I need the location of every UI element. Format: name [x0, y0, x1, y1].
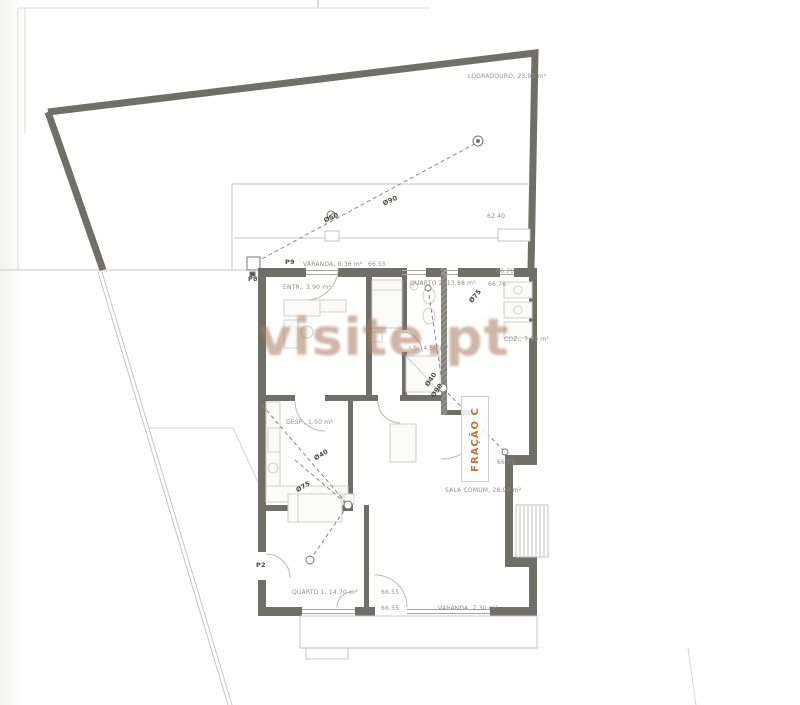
level-q2a: 66.76 [496, 268, 514, 275]
room-label-varanda-bottom: VARANDA, 7.30 m² [438, 605, 498, 612]
kitchen-door-arc [295, 401, 325, 431]
level-terrace: 62.40 [487, 213, 505, 220]
point-label-p9: P9 [285, 259, 295, 266]
fraction-tag: FRAÇÃO C [461, 396, 489, 482]
balcony [300, 616, 537, 659]
floorplan-page: visite.pt FRAÇÃO C LOGRADOURO, 23.90 m² … [0, 0, 800, 705]
level-q2b: 66.76 [488, 281, 506, 288]
drainage-pipes-upper [256, 142, 478, 262]
site-label-logradouro: LOGRADOURO, 23.90 m² [468, 73, 546, 80]
fraction-label: FRAÇÃO C [470, 407, 481, 472]
room-label-is1: I.S., 4.50 m² [409, 345, 448, 352]
room-label-coz: COZ., 7.00 m² [504, 336, 549, 343]
room-label-entrada: ENTR., 3.90 m² [283, 284, 331, 291]
level-bottom1: 66.55 [381, 589, 399, 596]
level-sala: 66.75 [497, 459, 515, 466]
room-label-varanda-top: VARANDA, 6.36 m² [303, 261, 363, 268]
terrace-lines [232, 184, 530, 270]
corridor-door-arc [378, 401, 400, 423]
drainage-nodes-upper [247, 136, 483, 276]
room-label-quarto2: QUARTO 2, 13.88 m² [410, 280, 476, 287]
level-top: 66.55 [368, 261, 386, 268]
plot-boundary-lower [98, 272, 258, 705]
level-bottom2: 66.55 [381, 605, 399, 612]
room-label-quarto1: QUARTO 1, 14.70 m² [292, 589, 358, 596]
stairs-hatch [516, 505, 548, 557]
p2-door-arc [266, 554, 290, 578]
plot-boundary [48, 53, 535, 270]
room-label-desp: DESP., 1.50 m² [286, 419, 333, 426]
point-label-p8: P8 [248, 276, 258, 283]
room-label-sala: SALA COMUM, 28.94 m² [445, 487, 521, 494]
point-label-p2: P2 [256, 562, 266, 569]
